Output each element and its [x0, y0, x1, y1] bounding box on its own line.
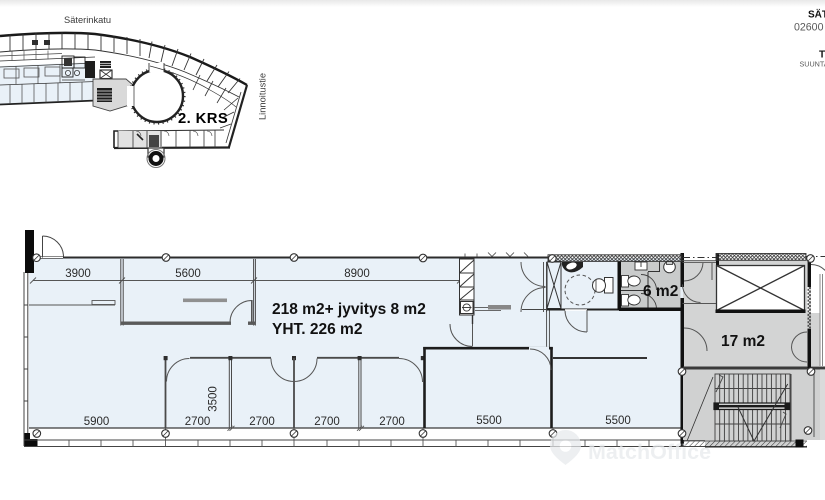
svg-text:2700: 2700: [379, 416, 405, 428]
svg-text:5500: 5500: [605, 415, 631, 427]
svg-text:02600 ESPOO: 02600 ESPOO: [794, 22, 825, 34]
svg-text:Linnoitustie: Linnoitustie: [258, 73, 268, 120]
svg-text:SUUNTAA-ANTAVA: SUUNTAA-ANTAVA: [800, 60, 825, 69]
svg-text:8900: 8900: [344, 268, 370, 280]
svg-text:2700: 2700: [249, 416, 275, 428]
svg-text:5600: 5600: [175, 268, 201, 280]
svg-text:17 m2: 17 m2: [721, 333, 765, 350]
svg-text:3500: 3500: [208, 386, 220, 412]
svg-text:218 m2+ jyvitys 8 m2: 218 m2+ jyvitys 8 m2: [272, 301, 426, 318]
svg-text:5500: 5500: [476, 415, 502, 427]
svg-text:2. KRS: 2. KRS: [178, 111, 228, 127]
svg-text:5900: 5900: [84, 416, 110, 428]
svg-text:3900: 3900: [65, 268, 91, 280]
svg-text:6 m2: 6 m2: [643, 283, 678, 300]
svg-text:SÄTERINKATU 6: SÄTERINKATU 6: [808, 8, 825, 21]
svg-text:YHT. 226 m2: YHT. 226 m2: [272, 321, 362, 338]
svg-text:2700: 2700: [314, 416, 340, 428]
svg-text:Säterinkatu: Säterinkatu: [64, 15, 111, 25]
svg-text:2700: 2700: [185, 416, 211, 428]
svg-text:MatchOffice: MatchOffice: [588, 440, 711, 464]
